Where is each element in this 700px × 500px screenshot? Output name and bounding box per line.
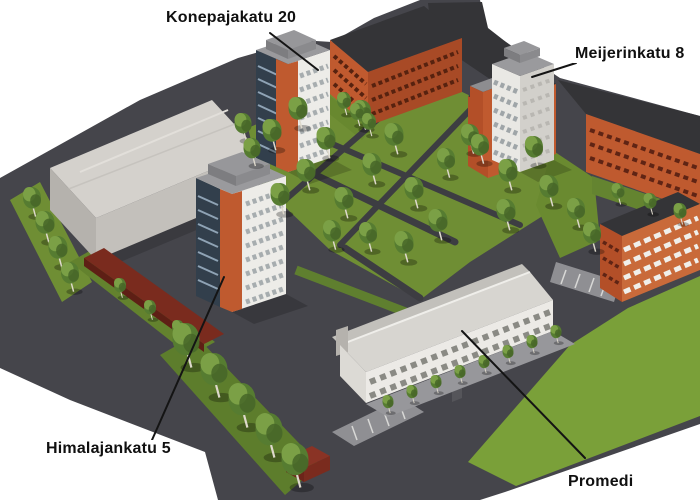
rendering-canvas: Konepajakatu 20 Meijerinkatu 8 Himalajan… bbox=[0, 0, 700, 500]
label-konepajakatu-20: Konepajakatu 20 bbox=[164, 9, 298, 27]
label-meijerinkatu-8: Meijerinkatu 8 bbox=[573, 45, 687, 63]
label-promedi: Promedi bbox=[566, 473, 635, 491]
label-himalajankatu-5: Himalajankatu 5 bbox=[44, 440, 173, 458]
site-3d-rendering bbox=[0, 0, 700, 500]
